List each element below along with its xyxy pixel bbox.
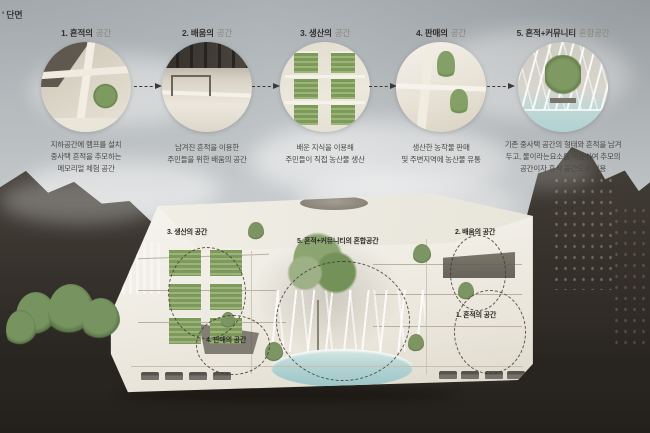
tree-shape — [82, 298, 120, 344]
step-1-diagram-circle — [41, 42, 131, 132]
step-4-title-strong: 4. 판매의 — [416, 28, 448, 38]
step-3-diagram-circle — [280, 42, 370, 132]
planting-bed-shape — [294, 53, 317, 73]
caption-line: 기존 중사택 공간의 형태와 흔적을 남겨 — [478, 139, 648, 151]
step-2-diagram-circle — [162, 42, 252, 132]
dashed-arrow-icon — [369, 86, 393, 87]
section-title: ' 단면 — [2, 8, 22, 21]
tree-shape — [93, 83, 118, 112]
car-shape — [189, 372, 207, 380]
tree-shape — [248, 222, 264, 242]
zone-circle-trace — [454, 290, 526, 374]
step-5-title-light: 혼합공간 — [579, 28, 609, 38]
zone-circle-sales — [196, 315, 270, 375]
floor-line — [285, 75, 364, 78]
zone-label-mixed: 5. 흔적+커뮤니티의 혼합공간 — [297, 236, 378, 246]
car-shape — [165, 372, 183, 380]
zone-label-learning: 2. 배움의 공간 — [455, 227, 495, 237]
planting-bed-shape — [331, 79, 354, 99]
zone-label-trace: 1. 흔적의 공간 — [456, 310, 496, 320]
hanging-vine-shape — [437, 51, 455, 80]
zone-label-production: 3. 생산의 공간 — [167, 227, 207, 237]
zone-circle-mixed — [276, 261, 410, 381]
planting-bed-shape — [294, 79, 317, 99]
dashed-arrow-icon — [487, 86, 511, 87]
car-shape — [507, 371, 525, 379]
steel-frame-shape — [171, 75, 211, 96]
courtyard-opening-shape — [300, 196, 368, 210]
presentation-board: ' 단면 1. 흔적의공간 지하공간에 램프를 설치 중사택 흔적을 추모하는 … — [0, 0, 650, 433]
step-5-title-strong: 5. 흔적+커뮤니티 — [517, 28, 576, 38]
building-windows-texture — [612, 205, 648, 350]
step-4-title-light: 공간 — [451, 28, 466, 38]
step-2-title-light: 공간 — [217, 28, 232, 38]
floor-shape — [41, 118, 131, 132]
step-1-title-light: 공간 — [96, 28, 111, 38]
floor-line — [285, 101, 364, 104]
step-1-title-strong: 1. 흔적의 — [61, 28, 93, 38]
car-shape — [461, 371, 479, 379]
step-5-title: 5. 흔적+커뮤니티혼합공간 — [478, 27, 648, 39]
step-5-caption: 기존 중사택 공간의 형태와 흔적을 남겨 두고, 물이라는요소를 이용하여 추… — [478, 139, 648, 175]
step-4-diagram-circle — [396, 42, 486, 132]
car-shape — [439, 371, 457, 379]
step-2-title-strong: 2. 배움의 — [182, 28, 214, 38]
louver-fence-shape — [115, 242, 161, 294]
car-shape — [141, 372, 159, 380]
tree-shape — [545, 55, 581, 102]
caption-line: 두고, 물이라는요소를 이용하여 추모의 — [478, 151, 648, 163]
ceiling-fins-shape — [162, 42, 252, 68]
planting-bed-shape — [294, 105, 317, 125]
water-edge-line — [518, 109, 608, 111]
hanging-vine-shape — [450, 89, 468, 116]
floor-shape — [396, 84, 486, 92]
planting-bed-shape — [331, 53, 354, 73]
building-windows-texture — [552, 175, 612, 290]
zone-label-sales: 4. 판매의 공간 — [206, 335, 246, 345]
tree-shape — [408, 334, 424, 354]
step-3-title-light: 공간 — [335, 28, 350, 38]
step-5-diagram-circle — [518, 42, 608, 132]
dashed-arrow-icon — [252, 86, 276, 87]
caption-line: 공간이자 휴식 공간으로 이용 — [478, 163, 648, 175]
foundation-line — [125, 392, 517, 394]
tree-shape — [413, 244, 431, 266]
dashed-arrow-icon — [134, 86, 158, 87]
step-3-title-strong: 3. 생산의 — [300, 28, 332, 38]
planting-bed-shape — [331, 105, 354, 125]
tree-shape — [6, 310, 36, 350]
